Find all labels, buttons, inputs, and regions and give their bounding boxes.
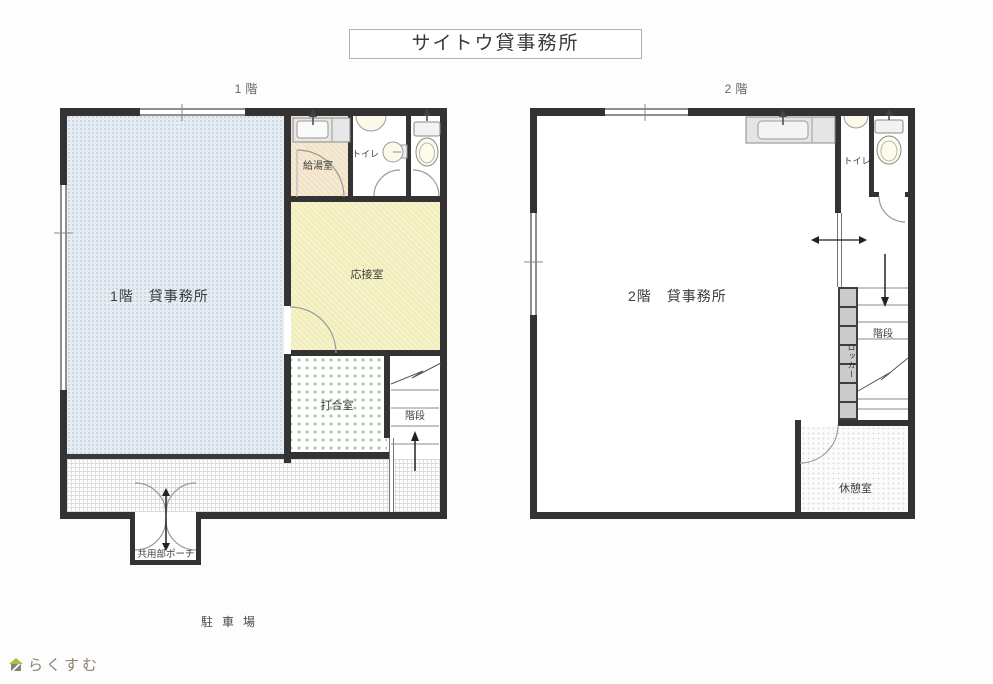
label-toilet-2f: トイレ <box>841 154 873 167</box>
window <box>605 108 688 116</box>
plan-title: サイトウ貸事務所 <box>349 29 642 59</box>
wall <box>287 196 447 202</box>
porch-doorway <box>135 512 196 519</box>
glass-partition <box>837 213 842 287</box>
wc2-doorway <box>879 192 905 197</box>
wall <box>795 420 801 519</box>
label-porch: 共用部ポーチ <box>131 546 201 560</box>
label-office-1f: 1階 貸事務所 <box>110 286 209 306</box>
glass-partition <box>389 438 394 512</box>
wall <box>284 452 390 459</box>
wall <box>67 454 284 459</box>
wall <box>60 512 447 519</box>
label-locker: ロッカー <box>840 308 857 413</box>
house-icon <box>8 658 23 672</box>
reception-doorway <box>284 306 291 354</box>
wall <box>406 112 411 202</box>
wall <box>384 352 390 438</box>
room-break <box>801 426 908 512</box>
label-reception: 応接室 <box>287 266 447 282</box>
rakusumu-logo: らくすむ <box>8 654 100 675</box>
logo-text: らくすむ <box>28 654 100 675</box>
label-kitchenette: 給湯室 <box>287 157 349 172</box>
porch-wall <box>130 560 201 565</box>
label-break-room: 休憩室 <box>808 480 903 496</box>
label-stairs-1f: 階段 <box>390 407 440 422</box>
window <box>530 213 537 315</box>
wall <box>838 420 908 426</box>
floor1-tag: 1階 <box>198 80 298 97</box>
label-stairs-2f: 階段 <box>860 325 906 340</box>
floorplan-page: サイトウ貸事務所 1階 2階 <box>0 0 993 684</box>
wall <box>908 108 915 519</box>
label-toilet-1f: トイレ <box>352 147 386 160</box>
window <box>60 185 67 390</box>
label-meeting: 打合室 <box>287 397 387 413</box>
window <box>140 108 245 116</box>
wall <box>530 512 915 519</box>
wall <box>60 108 447 116</box>
label-parking: 駐車場 <box>185 613 280 630</box>
floor2-tag: 2階 <box>688 80 788 97</box>
wall <box>530 108 915 116</box>
room-office-1f <box>67 115 287 455</box>
wall <box>284 350 447 356</box>
wall <box>440 108 447 519</box>
label-office-2f: 2階 貸事務所 <box>628 286 727 306</box>
